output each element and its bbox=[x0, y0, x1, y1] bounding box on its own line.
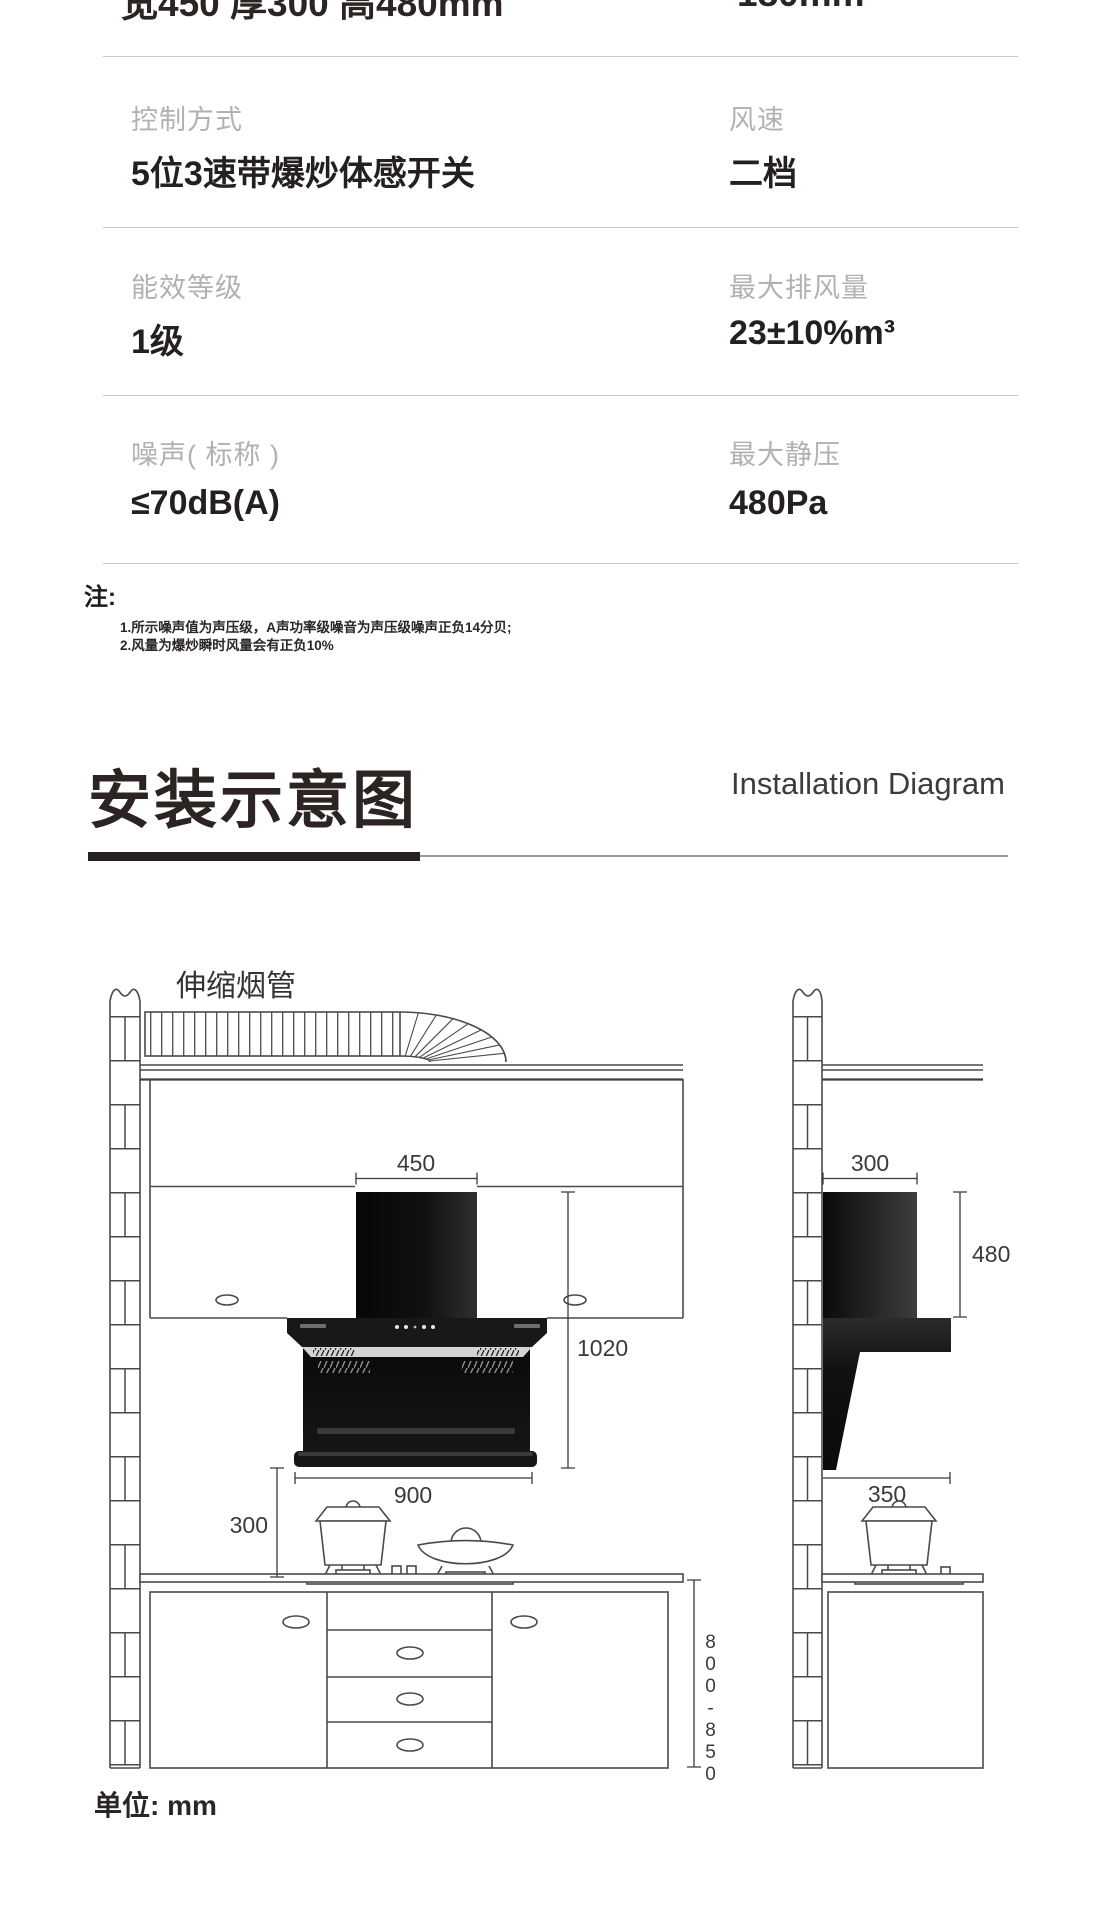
note-item-1: 1.所示噪声值为声压级，A声功率级噪音为声压级噪声正负14分贝; bbox=[120, 616, 512, 636]
spec-label-airflow: 最大排风量 bbox=[729, 266, 869, 305]
row-divider bbox=[103, 563, 1018, 564]
spec-label-control: 控制方式 bbox=[131, 98, 243, 137]
vent-grille bbox=[461, 1361, 513, 1373]
installation-diagram: 伸缩烟管 bbox=[0, 950, 1109, 1830]
spec-value-control: 5位3速带爆炒体感开关 bbox=[131, 146, 475, 195]
dim-counter-height: 800-850 bbox=[699, 1632, 721, 1786]
duct-label: 伸缩烟管 bbox=[176, 970, 296, 1003]
spec-label-windspeed: 风速 bbox=[729, 98, 785, 137]
dim-hood-width: 900 bbox=[394, 1482, 432, 1508]
spec-value-noise: ≤70dB(A) bbox=[131, 484, 280, 523]
spec-dimensions-value: 宽450 厚300 高480mm bbox=[121, 0, 504, 27]
vent-grille bbox=[318, 1361, 370, 1373]
spec-label-noise: 噪声( 标称 ) bbox=[131, 433, 280, 472]
right-wall bbox=[793, 989, 822, 1768]
notes-heading: 注: bbox=[84, 577, 116, 612]
product-spec-page: 宽450 厚300 高480mm 180mm 控制方式 5位3速带爆炒体感开关 … bbox=[0, 0, 1109, 1929]
brand-mark-right bbox=[514, 1324, 540, 1328]
cooktop-front bbox=[307, 1501, 513, 1584]
spec-value-airflow: 23±10%m³ bbox=[729, 314, 895, 353]
row-divider bbox=[103, 227, 1018, 228]
title-underline-thick bbox=[88, 852, 420, 861]
spec-value-pressure: 480Pa bbox=[729, 484, 827, 523]
countertop-side bbox=[822, 1574, 983, 1582]
spec-value-energy: 1级 bbox=[131, 314, 184, 363]
row-divider bbox=[103, 56, 1018, 57]
hood-body-side bbox=[823, 1318, 951, 1470]
section-title-en: Installation Diagram bbox=[731, 766, 1005, 802]
ceiling bbox=[140, 1065, 983, 1080]
brand-mark-left bbox=[300, 1324, 326, 1328]
countertop-front bbox=[140, 1574, 683, 1582]
dim-chimney-height: 480 bbox=[972, 1241, 1010, 1267]
spec-value-windspeed: 二档 bbox=[729, 146, 797, 195]
cabinet-handle bbox=[564, 1295, 586, 1305]
note-item-2: 2.风量为爆炒瞬时风量会有正负10% bbox=[120, 634, 334, 654]
dim-hood-to-counter: 300 bbox=[230, 1512, 268, 1538]
cooktop-side bbox=[855, 1501, 963, 1584]
base-cabinet-front bbox=[150, 1592, 668, 1768]
hood-chimney-front bbox=[356, 1192, 477, 1319]
row-divider bbox=[103, 395, 1018, 396]
base-cabinet-side bbox=[828, 1592, 983, 1768]
spec-label-energy: 能效等级 bbox=[131, 266, 243, 305]
hood-chimney-side bbox=[823, 1192, 917, 1319]
section-title-cn: 安装示意图 bbox=[88, 750, 418, 841]
spec-label-pressure: 最大静压 bbox=[729, 433, 841, 472]
unit-label: 单位: mm bbox=[94, 1789, 217, 1821]
range-hood-front bbox=[287, 1318, 547, 1467]
left-wall bbox=[110, 989, 140, 1768]
cabinet-handle bbox=[216, 1295, 238, 1305]
vent-grille bbox=[477, 1348, 519, 1356]
dim-depth-top: 300 bbox=[851, 1150, 889, 1176]
dim-hood-height: 1020 bbox=[577, 1335, 628, 1361]
title-underline-thin bbox=[420, 855, 1008, 857]
dim-chimney-width: 450 bbox=[397, 1150, 435, 1176]
telescopic-duct bbox=[145, 1012, 506, 1062]
wok-icon bbox=[418, 1528, 513, 1577]
spec-duct-diameter-value: 180mm bbox=[737, 0, 865, 15]
vent-grille bbox=[313, 1348, 355, 1356]
